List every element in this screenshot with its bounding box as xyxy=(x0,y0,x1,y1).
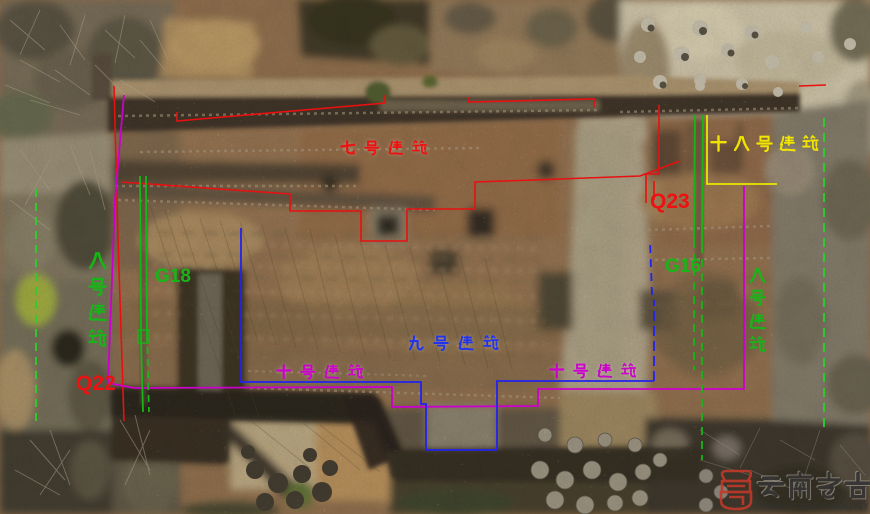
svg-text:G16: G16 xyxy=(665,256,701,277)
svg-text:G18: G18 xyxy=(155,266,191,287)
svg-text:Q22: Q22 xyxy=(76,372,116,395)
svg-text:Q23: Q23 xyxy=(650,190,690,213)
svg-text:YUNNAN ARCHAEOLOGY: YUNNAN ARCHAEOLOGY xyxy=(759,502,869,511)
